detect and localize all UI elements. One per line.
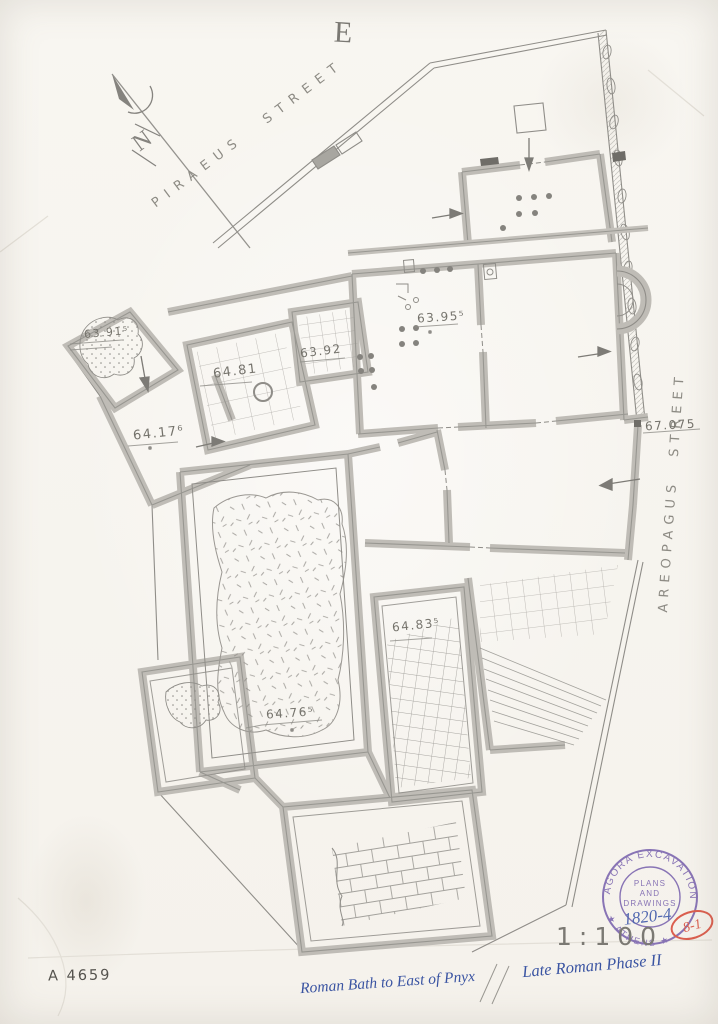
drawing-number: A 4659: [48, 967, 112, 984]
pilae-dots: [357, 193, 552, 390]
red-check-mark: 8-1: [681, 917, 703, 936]
scale-label: 1:100: [556, 922, 663, 951]
east-mark: E: [333, 16, 353, 51]
svg-text:AGORA EXCAVATIONS: AGORA EXCAVATIONS: [576, 824, 698, 900]
north-arrow-icon: [112, 74, 250, 248]
door-sills: [438, 162, 556, 548]
caption-divider: [480, 964, 509, 1004]
street-boundary-lines: [66, 30, 645, 952]
stamp-arc-top: AGORA EXCAVATIONS: [576, 824, 698, 900]
elevation-label-67-075: 67.075: [645, 417, 697, 434]
stamp-line-plans: PLANS: [634, 879, 666, 888]
stamp-line-and: AND: [640, 889, 661, 898]
plan-sheet: PIRAEUS STREET AREOPAGUS STREET N E 63.9…: [0, 0, 718, 1024]
steps-lines: [480, 648, 606, 745]
walls: [68, 154, 648, 952]
threshold-features: [312, 103, 546, 169]
